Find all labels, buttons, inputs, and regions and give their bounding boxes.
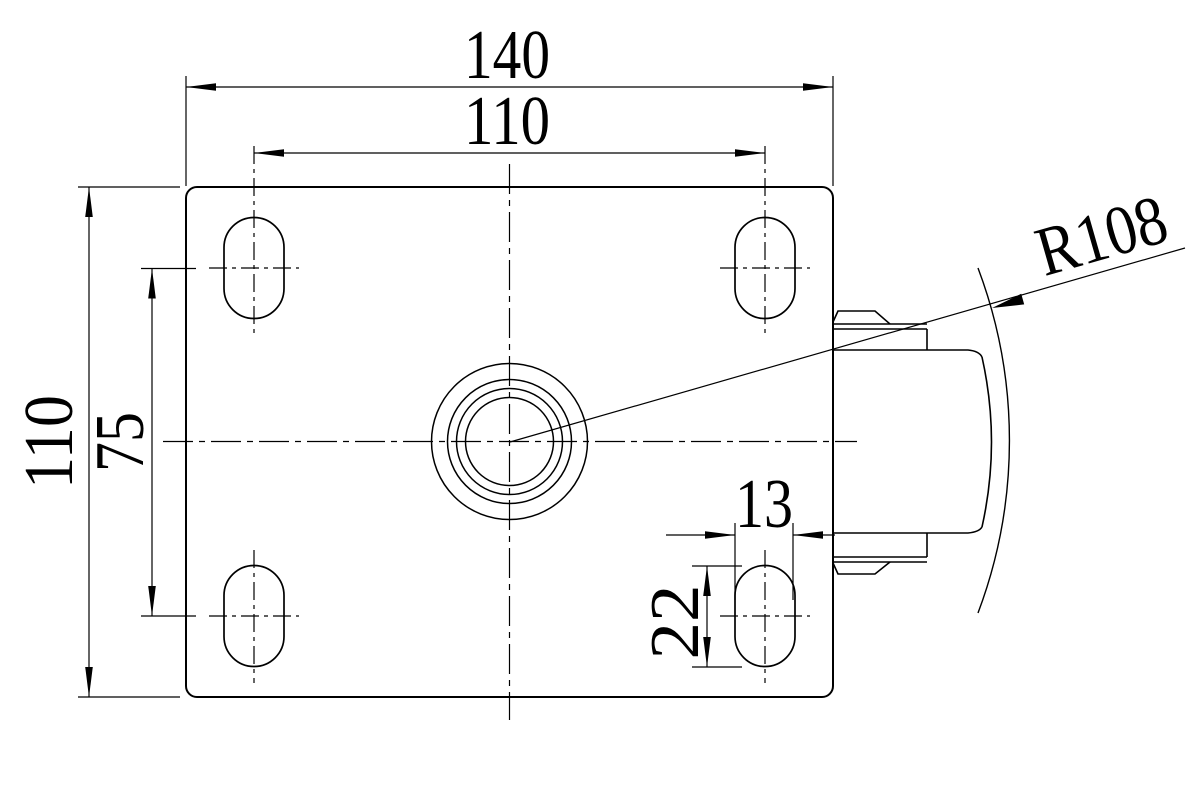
technical-drawing-page: 140 110 110 75 13 22 R108 bbox=[0, 0, 1201, 787]
dim-text-hole-spacing-vertical: 75 bbox=[82, 412, 159, 472]
arrow-75-bottom bbox=[148, 586, 156, 616]
arrow-110top-right bbox=[735, 149, 765, 157]
extension-lines bbox=[78, 76, 833, 697]
arrow-140-right bbox=[803, 83, 833, 91]
hub-chamfer-bottom bbox=[833, 562, 890, 574]
dim-text-slot-length: 22 bbox=[637, 585, 714, 660]
wheel-radius-arc bbox=[978, 268, 1009, 613]
arrow-75-top bbox=[148, 269, 156, 299]
dimension-arrows bbox=[85, 83, 1024, 697]
arrow-110top-left bbox=[254, 149, 284, 157]
arrow-13-right bbox=[793, 531, 823, 539]
center-lines bbox=[163, 146, 857, 720]
dim-text-plate-height: 110 bbox=[11, 395, 88, 489]
dim-text-hole-spacing-horizontal: 110 bbox=[464, 83, 550, 160]
arrow-140-left bbox=[186, 83, 216, 91]
tread-edge-bottom bbox=[833, 527, 982, 533]
arrow-110left-bottom bbox=[85, 667, 93, 697]
arrow-13-left bbox=[705, 531, 735, 539]
tread-edge-top bbox=[833, 350, 982, 357]
arrow-radius-leader bbox=[992, 294, 1024, 308]
tread-crown-arc bbox=[982, 357, 991, 527]
wheel-outline bbox=[833, 268, 1009, 613]
arrow-110left-top bbox=[85, 187, 93, 217]
hub-chamfer-top bbox=[833, 311, 890, 324]
dim-text-slot-width: 13 bbox=[735, 466, 793, 543]
dim-text-wheel-radius: R108 bbox=[1028, 181, 1176, 291]
caster-plate-drawing: 140 110 110 75 13 22 R108 bbox=[0, 0, 1201, 787]
